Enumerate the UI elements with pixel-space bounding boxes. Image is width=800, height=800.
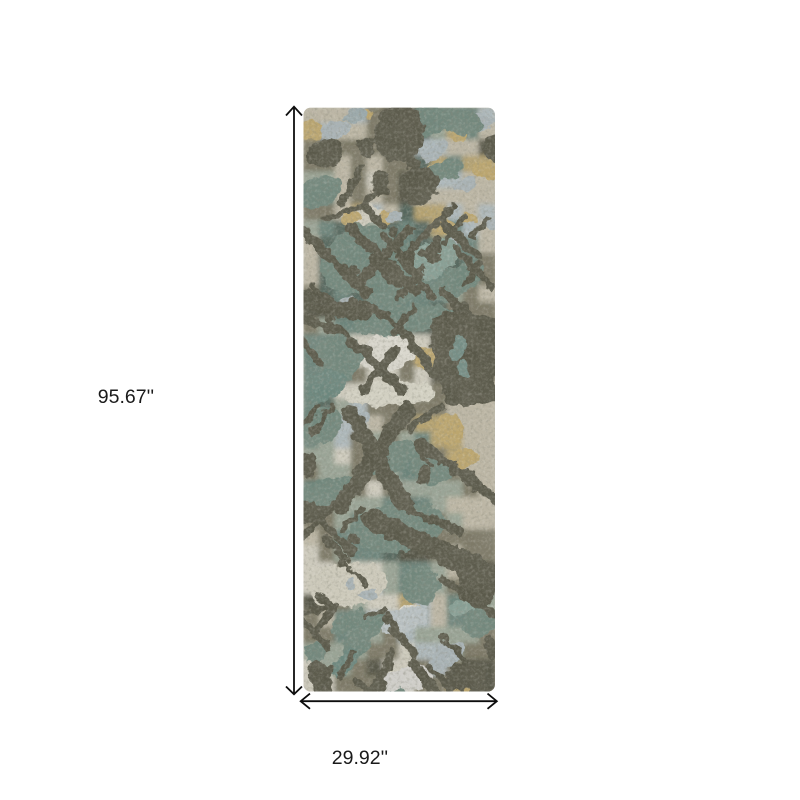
svg-text:29.92'': 29.92''	[332, 747, 388, 769]
svg-text:95.67'': 95.67''	[98, 386, 154, 408]
